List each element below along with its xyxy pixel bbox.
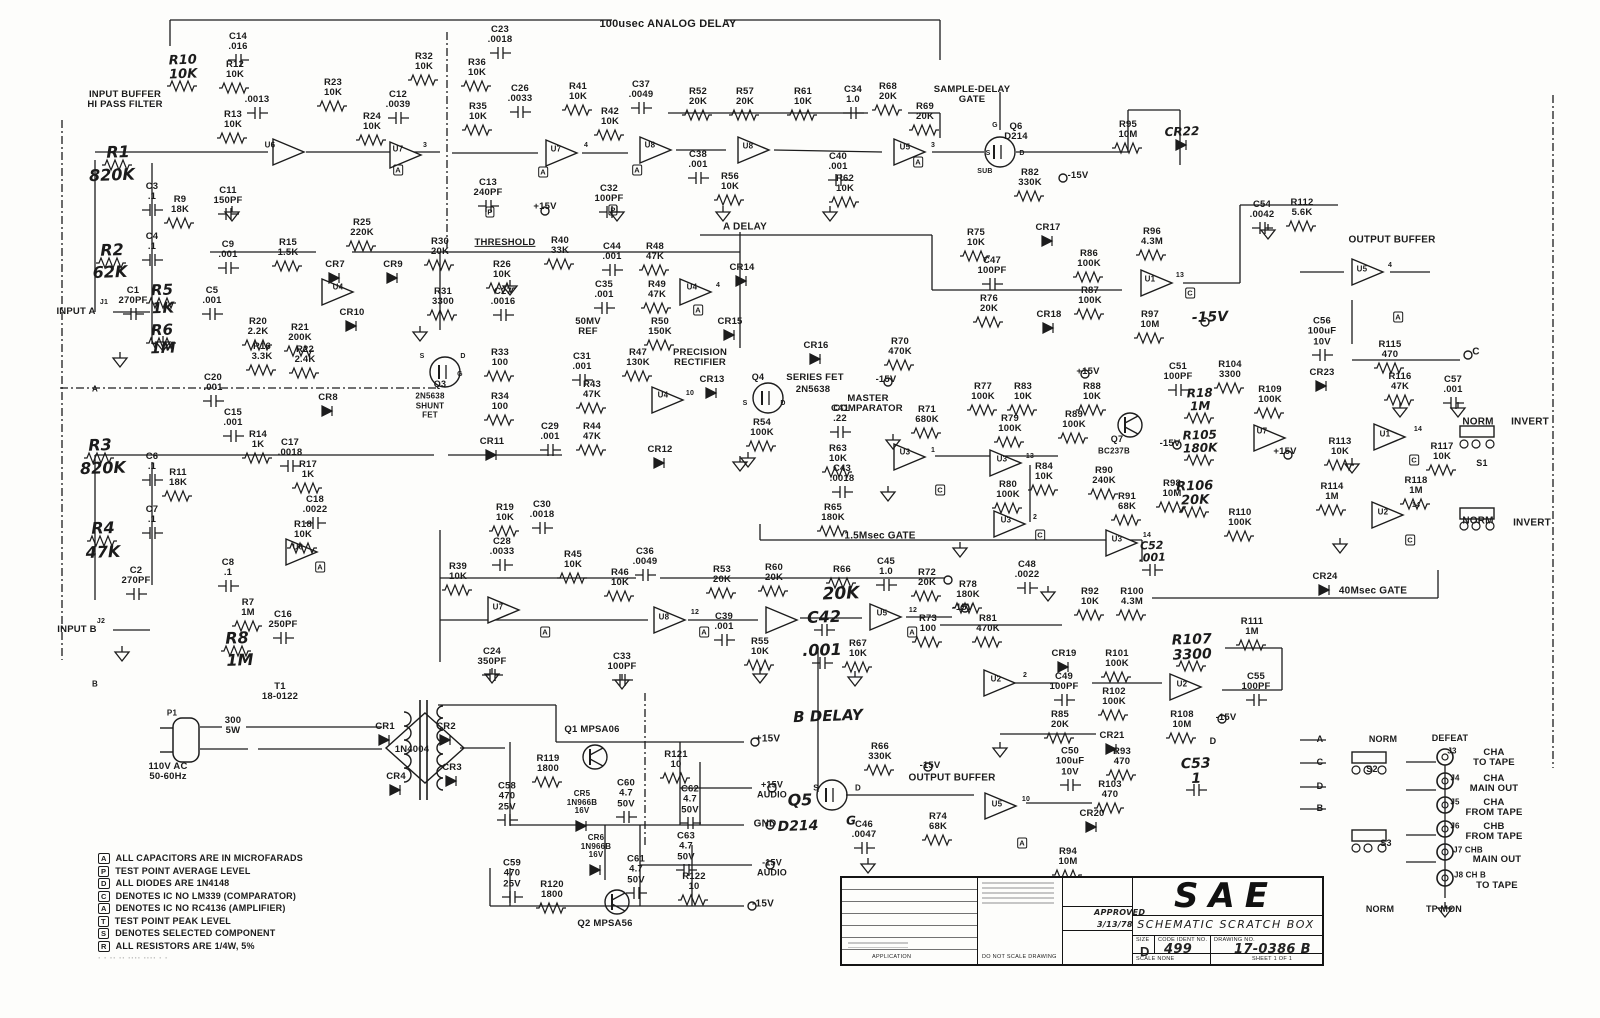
ground-symbol (861, 858, 875, 873)
schematic-label: CR20 (1079, 809, 1104, 819)
schematic-label: U2 (1378, 509, 1389, 518)
schematic-label: S (986, 150, 991, 158)
diode-symbol (379, 735, 389, 745)
capacitor-symbol (631, 102, 652, 114)
schematic-label: CR1 (375, 722, 395, 732)
schematic-label: +15V AUDIO (757, 780, 787, 799)
schematic-label: 100usec ANALOG DELAY (599, 19, 736, 31)
schematic-label: 1N4004 (395, 745, 429, 755)
resistor-symbol (842, 662, 872, 672)
resistor-symbol (994, 437, 1024, 447)
schematic-label: R63 10K (829, 444, 847, 465)
capacitor-symbol (502, 891, 523, 903)
capacitor-symbol (1017, 582, 1038, 594)
terminal-circle (1059, 174, 1067, 182)
schematic-label: C36 .0049 (633, 547, 658, 568)
schematic-label: MAIN OUT (1473, 855, 1522, 865)
schematic-label: R5 (151, 282, 174, 299)
schematic-label: C11 150PF (214, 186, 243, 207)
transistor-symbol (583, 745, 607, 769)
schematic-label: U7 (551, 146, 562, 155)
schematic-label: CR5 1N966B 16V (567, 790, 598, 816)
schematic-label: C62 4.7 50V (681, 785, 699, 816)
schematic-label: C34 1.0 (844, 85, 862, 106)
resistor-symbol (1073, 272, 1103, 282)
schematic-label: C42 (807, 608, 842, 626)
schematic-label: B (92, 681, 98, 690)
schematic-label: R1 (106, 143, 130, 161)
schematic-label: R23 10K (324, 78, 342, 99)
schematic-label: C13 240PF (474, 178, 503, 199)
schematic-label: C1 270PF (119, 286, 148, 307)
capacitor-symbol (497, 814, 518, 826)
schematic-label: INVERT (1511, 418, 1549, 429)
schematic-label: C47 100PF (978, 256, 1007, 277)
schematic-label: C (1317, 758, 1324, 768)
schematic-label: R106 20K (1176, 479, 1214, 508)
resistor-symbol (758, 586, 788, 596)
capacitor-symbol (273, 632, 294, 644)
ground-symbol (1393, 402, 1407, 417)
schematic-label: U4 (658, 392, 669, 401)
schematic-label: C35 .001 (594, 280, 613, 301)
schematic-label: C49 100PF (1050, 672, 1079, 693)
schematic-label: R6 (151, 322, 174, 339)
capacitor-symbol (1142, 564, 1163, 576)
resistor-symbol (1014, 191, 1044, 201)
capacitor-symbol (602, 264, 623, 276)
schematic-label: U7 (493, 604, 504, 613)
schematic-label: CR9 (383, 260, 403, 270)
resistor-symbol (912, 637, 942, 647)
schematic-label: R112 5.6K (1291, 198, 1314, 219)
schematic-label: SAMPLE-DELAY GATE (934, 85, 1010, 106)
schematic-label: C54 .0042 (1250, 200, 1275, 221)
diode-symbol (446, 776, 456, 786)
resistor-symbol (1136, 250, 1166, 260)
schematic-label: -15V AUDIO (757, 858, 787, 877)
schematic-label: CR15 (717, 317, 742, 327)
diode-symbol (1043, 323, 1053, 333)
schematic-label: T1 18-0122 (262, 682, 298, 703)
note-text: TEST POINT AVERAGE LEVEL (115, 866, 250, 876)
schematic-label: S (420, 353, 425, 361)
schematic-label: -15V (752, 900, 774, 911)
schematic-label: C7 .1 (146, 505, 159, 526)
schematic-label: 820K (89, 166, 135, 185)
schematic-label: R91 68K (1118, 492, 1136, 513)
schematic-label: +15V (756, 735, 780, 746)
capacitor-symbol (218, 208, 239, 220)
schematic-label: R7 1M (241, 598, 255, 619)
resistor-symbol (532, 777, 562, 787)
schematic-label: R33 100 (491, 348, 509, 369)
schematic-label: R8 (225, 629, 249, 647)
opamp-symbol (273, 139, 304, 165)
schematic-label: R35 10K (469, 102, 487, 123)
note-ref-marker: A (538, 167, 548, 178)
schematic-label: C52 .001 (1138, 540, 1166, 565)
schematic-label: CR7 (325, 260, 345, 270)
schematic-label: U8 (743, 143, 754, 152)
resistor-symbol (576, 403, 606, 413)
note-bullet: C (98, 891, 110, 902)
note-bullet: A (98, 853, 110, 864)
schematic-label: R92 10K (1081, 587, 1099, 608)
schematic-label: B (1317, 804, 1324, 814)
schematic-label: GND (754, 820, 777, 831)
schematic-label: C60 4.7 50V (617, 779, 635, 810)
transistor-symbol (590, 759, 603, 766)
schematic-label: -15V (1192, 310, 1229, 326)
ground-symbol (993, 742, 1007, 757)
schematic-label: R41 10K (569, 82, 587, 103)
schematic-label: C32 100PF (595, 184, 624, 205)
schematic-label: C15 .001 (223, 408, 242, 429)
schematic-label: C41 .22 (831, 404, 849, 425)
schematic-label: P1 (167, 710, 177, 719)
schematic-label: R61 10K (794, 87, 812, 108)
schematic-label: R34 100 (491, 392, 509, 413)
schematic-label: U5 (1357, 266, 1368, 275)
resistor-symbol (1058, 433, 1088, 443)
schematic-label: R115 470 (1379, 340, 1402, 361)
schematic-label: R60 20K (765, 563, 783, 584)
resistor-symbol (682, 110, 712, 120)
schematic-label: R120 1800 (540, 880, 564, 901)
note-ref-marker: C (1405, 535, 1415, 546)
resistor-symbol (1224, 531, 1254, 541)
schematic-label: CR10 (339, 308, 364, 318)
schematic-label: R48 47K (646, 242, 664, 263)
schematic-label: C40 .001 (828, 152, 847, 173)
schematic-label: R13 10K (224, 110, 242, 131)
schematic-label: 14 (1414, 426, 1422, 434)
schematic-label: 300 5W (225, 716, 241, 737)
schematic-label: C48 .0022 (1015, 560, 1040, 581)
schematic-label: C5 .001 (202, 286, 221, 307)
schematic-label: C57 .001 (1443, 375, 1462, 396)
schematic-label: R31 3300 (432, 287, 454, 308)
schematic-label: R88 10K (1083, 382, 1101, 403)
schematic-label: R75 10K (967, 228, 985, 249)
schematic-label: C16 250PF (269, 610, 298, 631)
schematic-label: INPUT BUFFER HI PASS FILTER (87, 90, 162, 111)
schematic-label: G (992, 122, 998, 130)
schematic-label: C51 100PF (1164, 362, 1193, 383)
schematic-label: C23 .0018 (488, 25, 513, 46)
schematic-label: R19 10K (496, 503, 514, 524)
schematic-label: R3 (88, 436, 112, 454)
schematic-label: 13 (1026, 453, 1034, 461)
capacitor-symbol (1060, 779, 1081, 791)
note-row: PTEST POINT AVERAGE LEVEL (98, 866, 368, 877)
resistor-symbol (484, 415, 514, 425)
schematic-label: R97 10M (1140, 310, 1159, 331)
schematic-label: 20K (822, 584, 859, 604)
resistor-symbol (346, 241, 376, 251)
capacitor-symbol (854, 842, 875, 854)
schematic-label: A (1317, 735, 1324, 745)
schematic-label: R18 10K (294, 520, 312, 541)
schematic-label: R70 470K (888, 337, 912, 358)
schematic-label: C31 .001 (572, 352, 591, 373)
schematic-label: INPUT A (56, 307, 95, 317)
schematic-label: R21 200K (288, 323, 312, 344)
schematic-label: C2 270PF (122, 566, 151, 587)
schematic-label: CHA TO TAPE (1473, 748, 1515, 769)
drawing-title: SCHEMATIC SCRATCH BOX (1132, 918, 1320, 931)
resistor-symbol (576, 445, 606, 455)
resistor-symbol (219, 83, 249, 93)
schematic-label: R80 100K (996, 480, 1020, 501)
resistor-symbol (1074, 309, 1104, 319)
note-text: TEST POINT PEAK LEVEL (115, 916, 231, 926)
schematic-label: CR4 (386, 772, 406, 782)
schematic-label: U6 (265, 142, 276, 151)
resistor-symbol (289, 368, 319, 378)
schematic-label: J3 (1447, 748, 1456, 757)
schematic-label: OUTPUT BUFFER (1348, 236, 1435, 247)
note-row: AALL CAPACITORS ARE IN MICROFARADS (98, 853, 368, 864)
switch-contact (1378, 766, 1386, 774)
schematic-label: R53 20K (713, 565, 731, 586)
sae-logo: SAE (1132, 876, 1320, 916)
switch-contact (1472, 440, 1480, 448)
schematic-label: R66 (833, 565, 851, 575)
schematic-label: R74 68K (929, 812, 947, 833)
diode-symbol (810, 354, 820, 364)
schematic-label: Q2 MPSA56 (577, 919, 632, 929)
schematic-label: Q5 (787, 791, 812, 809)
schematic-label: D (1019, 150, 1024, 158)
resistor-symbol (462, 125, 492, 135)
schematic-label: .0013 (245, 95, 270, 105)
schematic-label: R100 4.3M (1120, 587, 1144, 608)
schematic-label: R9 18K (171, 195, 189, 216)
schematic-label: A (92, 386, 98, 395)
capacitor-symbol (714, 634, 735, 646)
transistor-symbol (605, 890, 629, 914)
schematic-label: R17 1K (299, 460, 317, 481)
schematic-label: R39 10K (449, 562, 467, 583)
schematic-label: 47K (85, 543, 120, 561)
schematic-label: U5 (992, 801, 1003, 810)
schematic-label: S3 (1380, 839, 1391, 849)
diode-symbol (736, 276, 746, 286)
switch-contact (1352, 844, 1360, 852)
ground-symbol (823, 206, 837, 221)
schematic-label: C39 .001 (714, 612, 733, 633)
resistor-symbol (1316, 505, 1346, 515)
resistor-symbol (911, 428, 941, 438)
schematic-label: S (743, 400, 748, 408)
schematic-label: U1 (1145, 276, 1156, 285)
switch-contact (1352, 766, 1360, 774)
schematic-label: R4 (91, 519, 115, 537)
resistor-symbol (1134, 333, 1164, 343)
schematic-label: R111 1M (1241, 617, 1263, 638)
note-text: ALL DIODES ARE 1N4148 (116, 878, 230, 888)
resistor-symbol (1214, 383, 1244, 393)
diode-symbol (440, 735, 450, 745)
schematic-label: R95 10M (1118, 120, 1137, 141)
note-ref-marker: A (699, 627, 709, 638)
diode-symbol (706, 388, 716, 398)
schematic-label: U8 (659, 614, 670, 623)
schematic-label: J5 (1450, 799, 1459, 808)
schematic-label: CHA MAIN OUT (1470, 774, 1519, 795)
schematic-label: CR17 (1035, 223, 1060, 233)
schematic-label: CR14 (729, 263, 754, 273)
schematic-label: 2N5638 (415, 393, 444, 402)
schematic-label: C14 .016 (228, 32, 247, 53)
schematic-label: CR22 (1164, 125, 1199, 139)
schematic-label: R87 100K (1078, 286, 1102, 307)
schematic-label: R50 150K (648, 317, 672, 338)
capacitor-symbol (280, 460, 301, 472)
ground-symbol (1451, 402, 1465, 417)
schematic-label: U5 (900, 144, 911, 153)
schematic-label: R45 10K (564, 550, 582, 571)
note-bullet: P (98, 866, 109, 877)
note-ref-marker: C (1185, 288, 1195, 299)
schematic-label: R105 180K (1182, 428, 1217, 455)
diode-symbol (576, 821, 586, 831)
schematic-label: C55 100PF (1242, 672, 1271, 693)
schematic-label: U3 (997, 456, 1008, 465)
schematic-label: U8 (645, 142, 656, 151)
schematic-label: J2 (97, 618, 105, 626)
schematic-label: C18 .0022 (303, 495, 328, 516)
schematic-label: C29 .001 (540, 422, 559, 443)
schematic-label: R86 100K (1077, 249, 1101, 270)
schematic-label: R73 100 (919, 614, 937, 635)
capacitor-symbol (388, 112, 409, 124)
note-row: ADENOTES IC NO RC4136 (AMPLIFIER) (98, 903, 368, 914)
schematic-label: S1 (1476, 459, 1487, 469)
schematic-label: CR16 (803, 341, 828, 351)
schematic-label: R15 1.5K (278, 238, 299, 259)
schematic-label: R83 10K (1014, 382, 1032, 403)
schematic-label: OUTPUT BUFFER (908, 774, 995, 785)
schematic-label: U3 (1112, 536, 1123, 545)
resistor-symbol (461, 81, 491, 91)
schematic-label: SERIES FET (786, 373, 843, 383)
capacitor-symbol (688, 172, 709, 184)
schematic-label: C58 470 25V (498, 782, 516, 813)
switch-contact (1460, 440, 1468, 448)
schematic-label: CR18 (1036, 310, 1061, 320)
schematic-label: U1 (1380, 431, 1391, 440)
note-text: ALL RESISTORS ARE 1/4W, 5% (116, 941, 255, 951)
sheet-label: SHEET 1 OF 1 (1252, 956, 1292, 962)
schematic-label: R68 20K (879, 82, 897, 103)
resistor-symbol (1098, 710, 1128, 720)
resistor-symbol (973, 317, 1003, 327)
schematic-label: D (460, 353, 465, 361)
ac-plug (173, 718, 199, 762)
capacitor-symbol (247, 107, 268, 119)
diode-symbol (390, 785, 400, 795)
code-ident: 499 (1164, 942, 1192, 957)
schematic-label: INPUT B (57, 625, 96, 635)
switch-body (1352, 752, 1386, 763)
schematic-label: U3 (900, 449, 911, 458)
schematic-label: R52 20K (689, 87, 707, 108)
resistor-symbol (1074, 610, 1104, 620)
ground-symbol (753, 668, 767, 683)
note-ref-marker: A (540, 627, 550, 638)
ground-symbol (615, 674, 629, 689)
ground-symbol (881, 486, 895, 501)
resistor-symbol (911, 591, 941, 601)
schematic-label: TO TAPE (1476, 881, 1518, 891)
schematic-label: C30 .0018 (530, 500, 555, 521)
schematic-label: R62 10K (836, 174, 854, 195)
schematic-label: J4 (1450, 775, 1459, 784)
transistor-symbol (1125, 427, 1138, 434)
schematic-label: R101 100K (1105, 649, 1129, 670)
transistor-symbol (612, 904, 625, 911)
resistor-symbol (678, 895, 708, 905)
schematic-label: DEFEAT (1432, 734, 1469, 744)
schematic-label: Q3 (434, 380, 446, 390)
schematic-label: R18 1M (1187, 387, 1214, 414)
schematic-label: R96 4.3M (1141, 227, 1163, 248)
note-text: DENOTES IC NO RC4136 (AMPLIFIER) (116, 903, 286, 913)
schematic-label: R16 3.3K (252, 342, 273, 363)
schematic-label: R104 3300 (1218, 360, 1242, 381)
schematic-label: R32 10K (415, 52, 433, 73)
resistor-symbol (641, 303, 671, 313)
capacitor-symbol (876, 579, 897, 591)
resistor-symbol (639, 265, 669, 275)
transistor-symbol (1125, 416, 1138, 423)
resistor-symbol (787, 110, 817, 120)
capacitor-symbol (830, 426, 851, 438)
resistor-symbol (292, 483, 322, 493)
schematic-label: S2 (1366, 765, 1377, 775)
schematic-label: R114 1M (1321, 482, 1344, 503)
diode-symbol (654, 458, 664, 468)
resistor-symbol (594, 130, 624, 140)
schematic-label: R77 100K (971, 382, 995, 403)
schematic-label: SUB (977, 168, 992, 176)
schematic-label: R10 10K (168, 53, 197, 82)
schematic-label: CHB FROM TAPE (1465, 822, 1522, 843)
schematic-label: R69 20K (916, 102, 934, 123)
schematic-label: U4 (687, 284, 698, 293)
resistor-symbol (884, 360, 914, 370)
schematic-label: U7 (393, 146, 404, 155)
schematic-label: 62K (92, 263, 127, 281)
schematic-label: J1 (100, 299, 108, 307)
schematic-label: C26 .0033 (508, 84, 533, 105)
ground-symbol (716, 206, 730, 221)
schematic-label: R117 10K (1431, 442, 1454, 463)
schematic-label: CR24 (1312, 572, 1337, 582)
schematic-label: -15V (920, 761, 941, 771)
schematic-label: Q7 (1111, 435, 1123, 445)
ground-symbol (113, 352, 127, 367)
schematic-label: 14 (1143, 532, 1151, 540)
schematic-label: R113 10K (1329, 437, 1352, 458)
resistor-symbol (872, 105, 902, 115)
schematic-label: U6 (293, 544, 304, 553)
diode-symbol (322, 406, 332, 416)
schematic-label: B DELAY (793, 707, 863, 726)
